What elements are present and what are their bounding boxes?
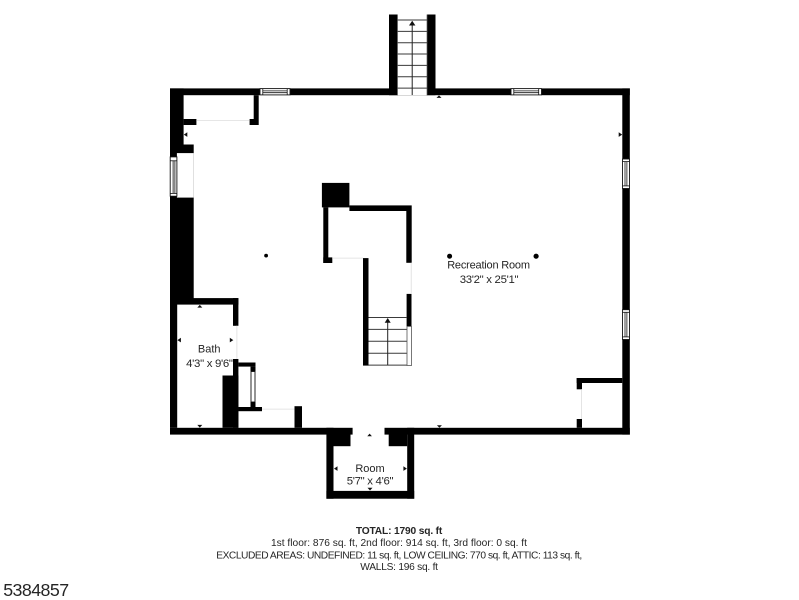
svg-text:EXCLUDED AREAS: UNDEFINED: 11: EXCLUDED AREAS: UNDEFINED: 11 sq. ft, LO… [216, 550, 582, 561]
svg-text:1st floor: 876 sq. ft, 2nd flo: 1st floor: 876 sq. ft, 2nd floor: 914 sq… [271, 538, 527, 549]
svg-text:4'3" x 9'6": 4'3" x 9'6" [186, 358, 233, 370]
svg-text:5384857: 5384857 [3, 580, 68, 600]
svg-text:TOTAL: 1790 sq. ft: TOTAL: 1790 sq. ft [356, 526, 443, 537]
svg-text:Room: Room [355, 463, 384, 475]
svg-text:33'2" x 25'1": 33'2" x 25'1" [460, 274, 519, 286]
svg-text:5'7" x 4'6": 5'7" x 4'6" [347, 476, 394, 488]
svg-text:WALLS: 196 sq. ft: WALLS: 196 sq. ft [360, 562, 438, 573]
svg-text:Recreation Room: Recreation Room [447, 260, 530, 272]
svg-text:Bath: Bath [198, 344, 221, 356]
